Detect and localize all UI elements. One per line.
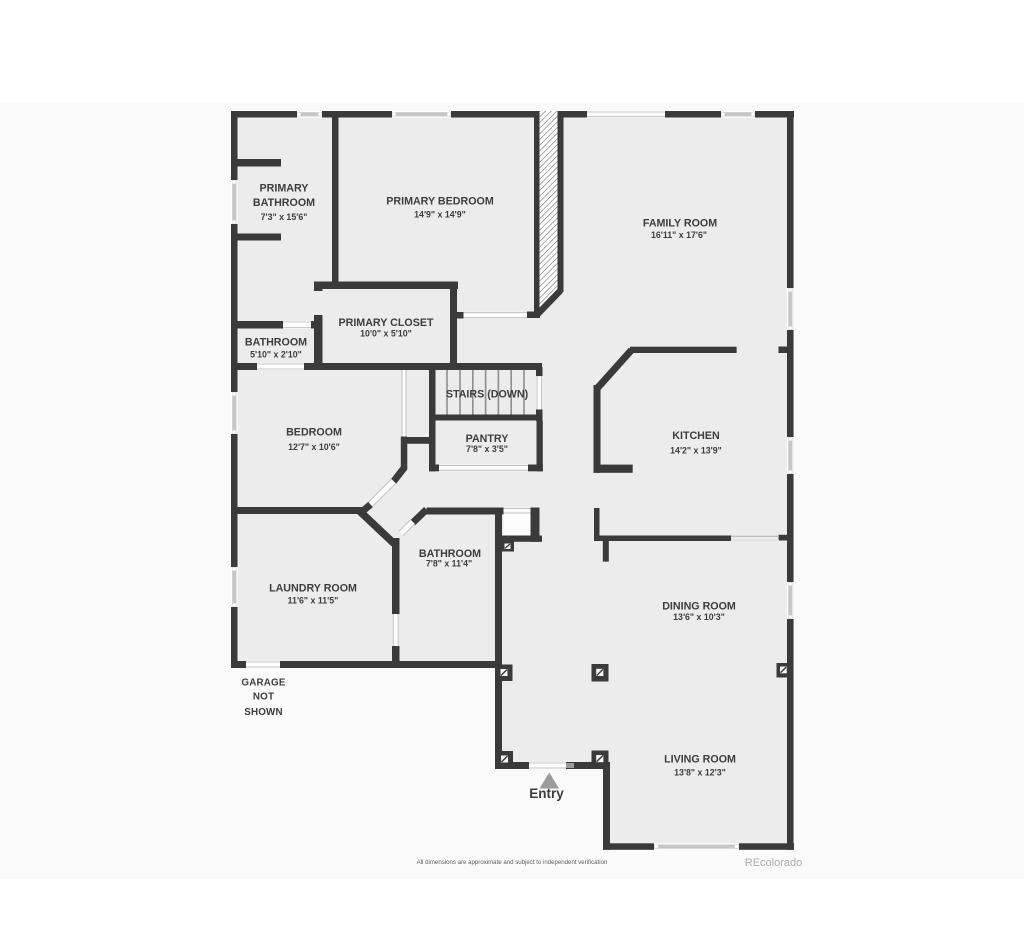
- svg-text:13'8" x 12'3": 13'8" x 12'3": [674, 768, 726, 778]
- svg-text:11'6" x 11'5": 11'6" x 11'5": [288, 596, 339, 606]
- svg-text:13'6" x 10'3": 13'6" x 10'3": [673, 612, 725, 622]
- svg-text:DINING ROOM: DINING ROOM: [662, 601, 736, 613]
- svg-text:BEDROOM: BEDROOM: [286, 427, 342, 439]
- svg-text:GARAGE: GARAGE: [241, 678, 285, 689]
- svg-text:All dimensions are approximate: All dimensions are approximate and subje…: [417, 859, 608, 866]
- svg-text:5'10" x 2'10": 5'10" x 2'10": [250, 350, 302, 360]
- svg-text:BATHROOM: BATHROOM: [253, 197, 315, 209]
- svg-text:STAIRS (DOWN): STAIRS (DOWN): [446, 389, 529, 401]
- svg-text:14'9" x 14'9": 14'9" x 14'9": [414, 210, 466, 220]
- svg-text:REcolorado: REcolorado: [745, 857, 802, 869]
- svg-text:7'8" x 11'4": 7'8" x 11'4": [426, 559, 472, 569]
- svg-text:BATHROOM: BATHROOM: [245, 337, 307, 349]
- svg-text:7'8" x 3'5": 7'8" x 3'5": [466, 444, 508, 454]
- svg-text:10'0" x 5'10": 10'0" x 5'10": [360, 329, 412, 339]
- svg-text:PRIMARY BEDROOM: PRIMARY BEDROOM: [386, 196, 494, 208]
- svg-text:PRIMARY CLOSET: PRIMARY CLOSET: [338, 317, 433, 329]
- svg-text:14'2" x 13'9": 14'2" x 13'9": [670, 446, 722, 456]
- svg-text:Entry: Entry: [529, 786, 564, 801]
- svg-text:12'7" x 10'6": 12'7" x 10'6": [288, 442, 340, 452]
- svg-text:LAUNDRY ROOM: LAUNDRY ROOM: [269, 582, 357, 594]
- svg-text:7'3" x 15'6": 7'3" x 15'6": [261, 212, 308, 222]
- svg-text:SHOWN: SHOWN: [244, 707, 283, 718]
- svg-text:PRIMARY: PRIMARY: [260, 182, 309, 194]
- svg-text:LIVING ROOM: LIVING ROOM: [664, 754, 736, 766]
- svg-text:NOT: NOT: [253, 692, 274, 703]
- svg-text:KITCHEN: KITCHEN: [672, 430, 720, 442]
- svg-text:16'11" x 17'6": 16'11" x 17'6": [651, 230, 707, 240]
- svg-text:FAMILY ROOM: FAMILY ROOM: [643, 217, 717, 229]
